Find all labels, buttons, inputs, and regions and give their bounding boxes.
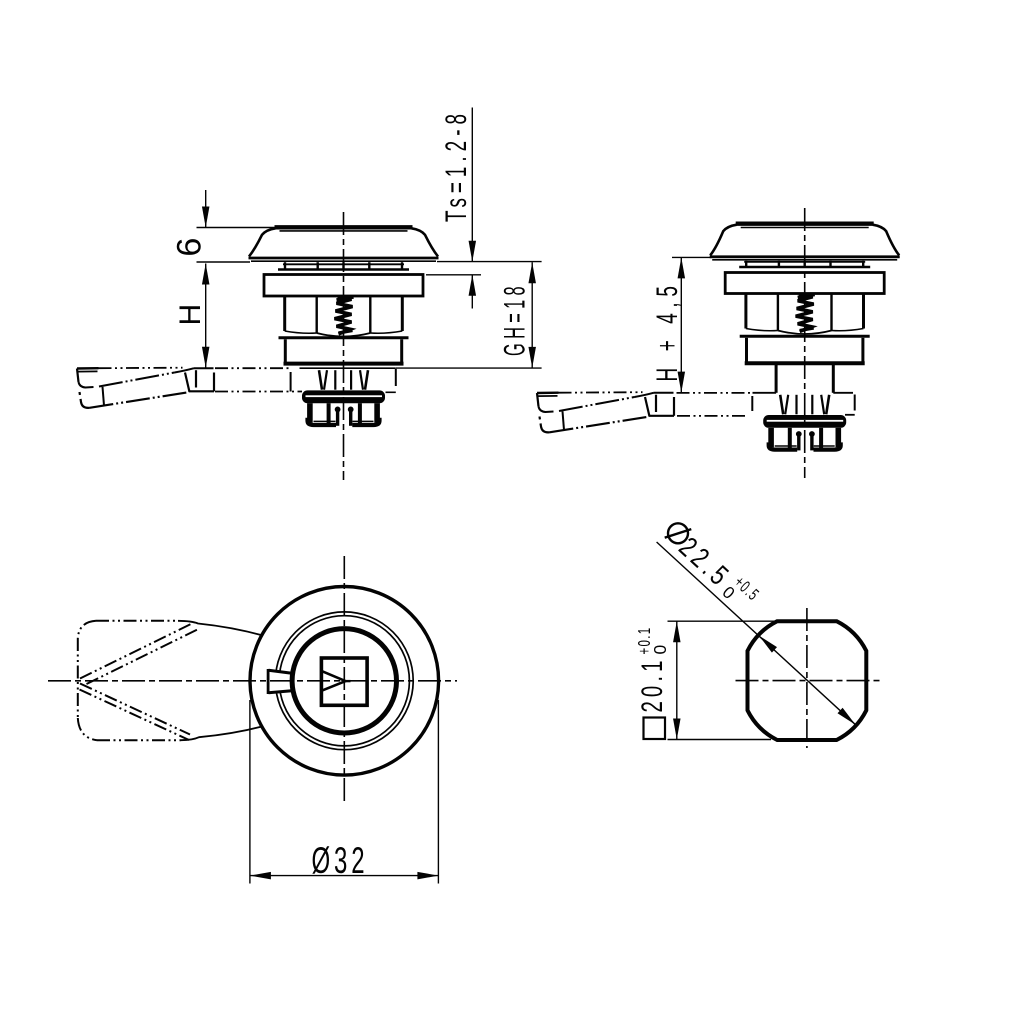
svg-text:H + 4,5: H + 4,5 (651, 281, 684, 382)
svg-text:0: 0 (650, 645, 670, 655)
svg-text:Ø32: Ø32 (312, 840, 369, 881)
svg-text:6: 6 (171, 238, 209, 257)
svg-text:Ts=1.2-8: Ts=1.2-8 (440, 109, 473, 222)
svg-text:GH=18: GH=18 (499, 282, 532, 356)
svg-text:20.1: 20.1 (636, 657, 669, 713)
svg-text:H: H (174, 304, 207, 326)
